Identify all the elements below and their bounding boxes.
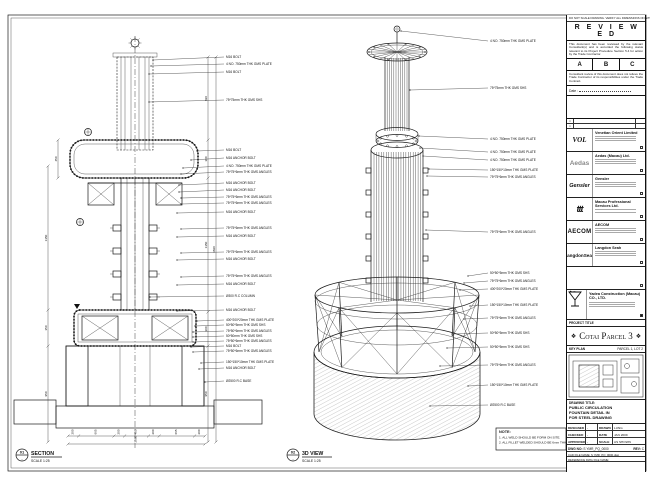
drawing-sheet: M16 BOLT4 NO. 750mm THK GMS PLATEM16 BOL… (0, 0, 650, 488)
aecom-logo: AECOM (567, 221, 593, 243)
stamp-date-row: Date : (567, 86, 645, 96)
callout-label: 75*50*6mm THK GMS ANGLES (226, 349, 272, 353)
checkbox-icon (640, 314, 644, 318)
dimension-text: 950 (44, 391, 48, 396)
revision-mark: × (567, 119, 574, 123)
3d-view-title: 3D VIEW (302, 451, 323, 457)
reviewed-stamp: DO NOT SCALE DRAWING. VERIFY ALL DIMENSI… (567, 15, 645, 119)
callout-label: 75*50*6mm THK GMS ANGLES (226, 329, 272, 333)
consultant-address (595, 182, 643, 187)
consultant-address (595, 209, 643, 212)
stamp-option-c: C (620, 59, 645, 70)
callout-label: 400*200*20mm THK GMS PLATE (490, 287, 538, 291)
callout-label: 75*75mm THK GMS SHS (226, 98, 262, 102)
dimension-text: 300 (204, 326, 208, 331)
callout-label: M16 ANCHOR BOLT (226, 156, 256, 160)
contractor-logo-icon (567, 290, 583, 310)
approval-value: JAN 2009 (613, 431, 645, 437)
3d-bubble-no: 02 (291, 450, 296, 455)
revision-desc (574, 119, 636, 123)
checkbox-icon (640, 192, 644, 196)
callout-label: 75*75*6mm THK GMS ANGLES (226, 195, 272, 199)
consultant-row-venetian: VOL Venetian Orient Limited (567, 129, 645, 152)
consultant-name: Gensler (595, 177, 643, 181)
callout-label: 75*75*6mm THK GMS ANGLES (490, 363, 536, 367)
callout-label: M16 ANCHOR BOLT (226, 308, 256, 312)
consultant-name: Aedas (Macau) Ltd. (595, 154, 643, 158)
callout-label: M16 ANCHOR BOLT (226, 282, 256, 286)
stamp-option-a: A (567, 59, 593, 70)
section-view-label: 01 - SECTION SCALE 1:25 (16, 449, 62, 463)
approval-label: CHECKED (567, 431, 586, 437)
approval-label: DATE (598, 431, 613, 437)
callout-label: M16 ANCHOR BOLT (226, 181, 256, 185)
callout-label: M16 BOLT (226, 70, 241, 74)
stamp-body-1: This document has been reviewed by the r… (567, 41, 645, 59)
dimension-text: 200 (70, 429, 74, 434)
dimension-text: 665 (174, 429, 178, 434)
consultant-name: AECOM (595, 223, 643, 227)
dimension-text: 820 (204, 96, 208, 101)
callout-label: 150*150*10mm THK GMS PLATE (490, 383, 538, 387)
consultant-name: Venetian Orient Limited (595, 131, 643, 135)
stamp-top-note: DO NOT SCALE DRAWING. VERIFY ALL DIMENSI… (567, 15, 645, 22)
callout-label: Ø300 R.C COLUMN (226, 294, 256, 298)
checkbox-icon (640, 238, 644, 242)
dimension-text: 665 (93, 429, 97, 434)
mps-logo: ttt (567, 198, 593, 220)
consultant-name: Langdon Seah (595, 246, 643, 250)
approval-label: DESIGNED (567, 424, 586, 430)
revision-mark: × (567, 124, 574, 128)
section-view-title: SECTION (31, 451, 54, 457)
approval-label: SCALE (598, 438, 613, 444)
callout-label: 150*150*10mm THK GMS PLATE (490, 303, 538, 307)
rev-label: REV: (633, 447, 640, 450)
callout-label: 75*75*6mm THK GMS ANGLES (226, 250, 272, 254)
dwg-no-label: DWG NO: (568, 447, 583, 450)
contractor-row: Yadea Construction (Macau) CO., LTD. (567, 290, 645, 320)
consultant-row-aecom: AECOM AECOM (567, 221, 645, 244)
note-heading: NOTE: (499, 430, 511, 434)
dimension-text: 200 (151, 429, 155, 434)
callout-label: M16 BOLT (226, 344, 241, 348)
stamp-option-b: B (593, 59, 619, 70)
callout-label: 75*75mm THK GMS SHS (490, 86, 526, 90)
approval-value: LUNG (613, 424, 645, 430)
callout-label: M16 ANCHOR BOLT (226, 366, 256, 370)
revision-by (636, 124, 645, 128)
checkbox-icon (640, 169, 644, 173)
section-view (14, 36, 262, 448)
consultant-name: Macau Professional Services Ltd. (595, 200, 643, 208)
project-name: Cotai Parcel 3 (579, 331, 633, 341)
callout-label: 4 NO. 750mm THK GMS PLATE (226, 62, 272, 66)
note-line: 1. ALL WELD SHOULD BE FORM ON SITE. (499, 436, 560, 440)
callout-label: 150*150*10mm THK GMS PLATE (490, 168, 538, 172)
key-plan-note: PARCEL 1, LOT 2 (617, 347, 643, 351)
callout-label: 75*75*6mm THK GMS ANGLES (226, 226, 272, 230)
approval-value: - (586, 424, 598, 430)
callout-label: Ø2500 R.C BASE (490, 403, 515, 407)
callout-label: 4 NO. 750mm THK GMS PLATE (490, 158, 536, 162)
callout-label: M16 ANCHOR BOLT (226, 210, 256, 214)
project-title-label: PROJECT TITLE (567, 320, 645, 327)
ornament-icon: ❖ (636, 333, 641, 340)
key-plan-map (567, 353, 645, 400)
consultant-row-langdonseah: LangdonSeah Langdon Seah (567, 244, 645, 267)
dimension-text: 200 (116, 429, 120, 434)
consultant-address (595, 159, 643, 164)
checkbox-icon (640, 215, 644, 219)
stamp-date-line (579, 88, 631, 92)
3d-view-scale: SCALE 1:25 (302, 459, 321, 463)
approval-value: - (586, 431, 598, 437)
dimension-text: 200 (197, 429, 201, 434)
callout-label: M16 ANCHOR BOLT (226, 234, 256, 238)
callout-label: 400*200*20mm THK GMS PLATE (226, 318, 274, 322)
callout-label: 4 NO. 750mm THK GMS PLATE (490, 137, 536, 141)
general-note: NOTE: 1. ALL WELD SHOULD BE FORM ON SITE… (496, 428, 567, 450)
callout-label: 75*75*6mm THK GMS ANGLES (226, 170, 272, 174)
dimension-text: 350 (44, 325, 48, 330)
approval-value: AS SHOWN (613, 438, 645, 444)
callout-label: M16 BOLT (226, 148, 241, 152)
stamp-body-2: Consultant review of this document does … (567, 71, 645, 86)
drawing-title-block: DRAWING TITLE: PUBLIC CIRCULATION FOUNTA… (567, 400, 645, 424)
dimension-text: 3820 (212, 246, 216, 253)
key-plan-label: KEY PLAN PARCEL 1, LOT 2 (567, 346, 645, 353)
project-name-row: ❖ Cotai Parcel 3 ❖ (567, 327, 645, 346)
venetian-logo: VOL (567, 129, 593, 151)
rev-value: C (642, 447, 644, 450)
dwg-number-row: DWG NO: S YMR_PQ_0000 REV: C (567, 445, 645, 452)
dimension-text: 450 (134, 429, 138, 434)
title-block: DO NOT SCALE DRAWING. VERIFY ALL DIMENSI… (566, 15, 646, 472)
aedas-logo: Aedas (567, 152, 593, 174)
dimension-text: 2580 (134, 435, 138, 442)
callout-label: 4 NO. 750mm THK GMS PLATE (490, 150, 536, 154)
callout-label: 50*50*5mm THK GMS SHS (490, 271, 529, 275)
checkbox-icon (640, 284, 644, 288)
callout-label: Ø2500 R.C BASE (226, 379, 251, 383)
approval-label: APPROVED (567, 438, 586, 444)
approvals-grid: DESIGNED - DRAWN LUNG CHECKED - DATE JAN… (567, 424, 645, 445)
drawing-canvas: M16 BOLT4 NO. 750mm THK GMS PLATEM16 BOL… (0, 0, 650, 488)
ornament-icon: ❖ (571, 333, 576, 340)
callout-label: M16 BOLT (226, 55, 241, 59)
level-marker (74, 304, 80, 309)
drawing-title-line: FOR STEEL DRAWING (569, 415, 643, 420)
revision-desc (574, 124, 636, 128)
callout-label: 75*50*6mm THK GMS ANGLES (226, 339, 272, 343)
callout-label: 50*50*5mm THK GMS SHS (490, 331, 529, 335)
approval-label: DRAWN (598, 424, 613, 430)
checkbox-icon (640, 261, 644, 265)
section-view-scale: SCALE 1:25 (31, 459, 50, 463)
dwg-no-value: S YMR_PQ_0000 (583, 447, 608, 450)
consultant-row-mps: ttt Macau Professional Services Ltd. (567, 198, 645, 221)
contractor-address (589, 302, 643, 307)
callout-label: 75*75*6mm THK GMS ANGLES (490, 316, 536, 320)
reference-dwg-row: REFERENCE DWG FILE NAME: (567, 457, 645, 462)
checkbox-icon (640, 146, 644, 150)
callout-label: 75*75*6mm THK GMS ANGLES (226, 274, 272, 278)
callout-label: M16 ANCHOR BOLT (226, 257, 256, 261)
callout-label: 75*75*6mm THK GMS ANGLES (226, 201, 272, 205)
stamp-date-label: Date : (569, 89, 578, 93)
3d-view-label: 02 - 3D VIEW SCALE 1:25 (287, 449, 332, 463)
consultant-row-empty (567, 267, 645, 290)
dimension-text: 450 (54, 156, 58, 161)
approval-value: - (586, 438, 598, 444)
callout-label: 50*50*5mm THK GMS SHS (490, 345, 529, 349)
gensler-logo: Gensler (567, 175, 593, 197)
consultant-address (595, 251, 643, 256)
langdonseah-logo: LangdonSeah (567, 244, 593, 266)
section-bubble-no: 01 (20, 450, 25, 455)
callout-label: 75*75*6mm THK GMS ANGLES (490, 279, 536, 283)
note-line: 2. ALL FILLET WELDED SHOULD BE 6mm THK. (499, 441, 567, 445)
dimension-text: 1350 (204, 241, 208, 248)
callout-label: M16 ANCHOR BOLT (226, 188, 256, 192)
dimension-text: 950 (204, 391, 208, 396)
dimension-text: 380 (204, 156, 208, 161)
callout-label: 150*150*10mm THK GMS PLATE (226, 360, 274, 364)
consultant-address (595, 228, 643, 233)
callout-label: 4 NO. 750mm THK GMS PLATE (490, 39, 536, 43)
stamp-status-options: A B C (567, 59, 645, 71)
contractor-name: Yadea Construction (Macau) CO., LTD. (589, 292, 643, 300)
callout-label: 75*75*6mm THK GMS ANGLES (490, 175, 536, 179)
callout-label: 50*50mm THK GMS SHS (226, 334, 262, 338)
reviewed-title: R E V I E W E D (567, 22, 645, 41)
callout-label: 75*75*6mm THK GMS ANGLES (490, 230, 536, 234)
callout-label: 50*50*5mm THK GMS SHS (226, 323, 265, 327)
consultant-row-aedas: Aedas Aedas (Macau) Ltd. (567, 152, 645, 175)
dimension-text: 1350 (44, 234, 48, 241)
consultant-address (595, 136, 643, 141)
consultant-row-gensler: Gensler Gensler (567, 175, 645, 198)
3d-view (314, 26, 480, 440)
revision-by (636, 119, 645, 123)
callout-label: 4 NO. 750mm THK GMS PLATE (226, 164, 272, 168)
